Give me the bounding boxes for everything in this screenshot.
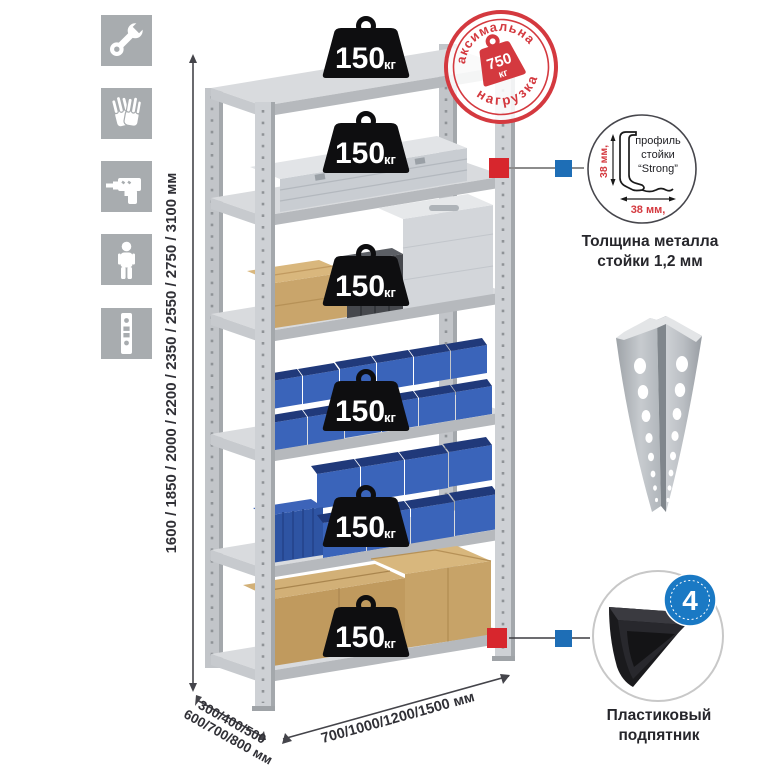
badge-count: 4 [682,585,698,616]
profile-label-line1: профиль [635,135,681,147]
max-load-stamp: максимальная нагрузка 750 кг [441,6,563,128]
depth-dimension: 300/400/500 600/700/800 мм [181,695,275,765]
profile-dim-horizontal: 38 мм, [631,204,666,216]
plastic-foot-callout-circle: 4 в комплекте [589,567,731,707]
profile-label-line2: стойки [641,149,675,161]
red-marker-top [489,158,509,178]
blue-marker-bottom [555,630,572,647]
height-dimension: 1600 / 1850 / 2000 / 2200 / 2350 / 2550 … [163,54,197,692]
red-marker-bottom [487,628,507,648]
foot-callout-connector [487,628,590,648]
blue-marker-top [555,160,572,177]
profile-callout-connector [489,158,584,178]
infographic-shelving-rack: { "product": { "type": "metal shelving r… [0,0,765,765]
metal-angle-upright-image [600,308,718,520]
profile-label-line3: “Strong” [638,163,678,175]
width-dimension: 700/1000/1200/1500 мм [282,674,510,747]
profile-dim-vertical: 38 мм, [598,145,610,178]
width-dimension-label: 700/1000/1200/1500 мм [319,689,476,747]
height-dimension-label: 1600 / 1850 / 2000 / 2200 / 2350 / 2550 … [163,173,180,554]
profile-callout-circle: 38 мм, 38 мм, профиль стойки “Strong” [584,112,700,228]
